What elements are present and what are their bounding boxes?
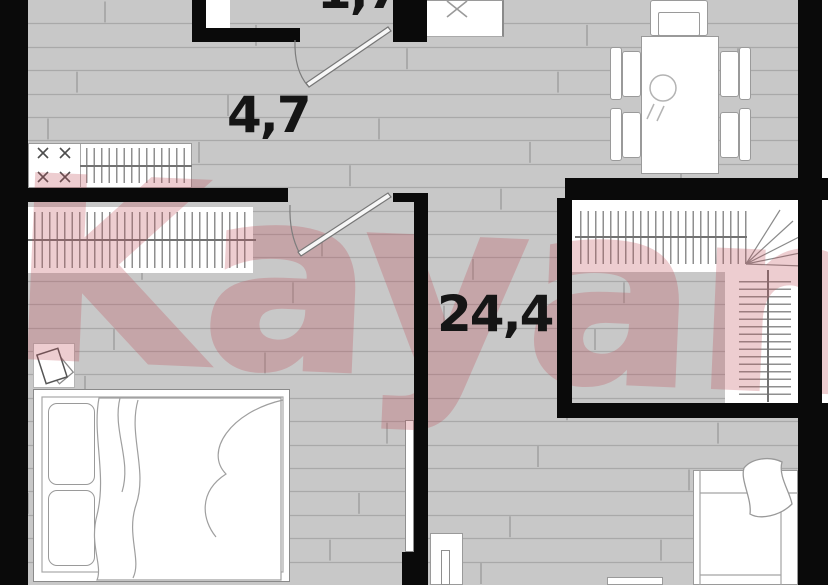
bottom-table [607, 577, 663, 585]
dining-chair-left1-seat [622, 51, 641, 97]
sliding-door-leaf [405, 420, 414, 552]
wall-wardrobe-room-left [557, 198, 572, 418]
wall-left [0, 0, 28, 585]
bed-pillow-2 [48, 490, 95, 566]
dining-chair-right2-back [739, 108, 751, 161]
hallway-area-label: 4,7 [227, 90, 310, 140]
dining-chair-right1-seat [720, 51, 739, 97]
wall-middle-vertical [414, 195, 428, 585]
appliance-box [424, 0, 504, 37]
tv-panel [441, 550, 450, 585]
wall-right-lower [798, 412, 828, 585]
wall-bedroom-top [28, 188, 288, 202]
top-room-area-label: 1,7 [317, 0, 400, 16]
dining-chair-right1-back [739, 47, 751, 100]
living-room-area-label: 24,4 [437, 289, 552, 339]
entrance-door [295, 27, 391, 87]
wall-wardrobe-room-bottom [557, 403, 828, 418]
wall-right-upper [798, 0, 822, 412]
dining-chair-top-seat [658, 12, 700, 36]
sofa [693, 470, 798, 585]
wall-bathroom-bottom [192, 28, 300, 42]
dining-chair-right2-seat [720, 112, 739, 158]
wall-middle-foot [402, 552, 428, 585]
dining-chair-left1-back [610, 47, 622, 100]
wall-wardrobe-room-top [565, 178, 828, 200]
apartment-floor-plan: Kayan 4,7 24,4 1,7 [0, 0, 828, 585]
bathroom-niche [206, 0, 230, 30]
